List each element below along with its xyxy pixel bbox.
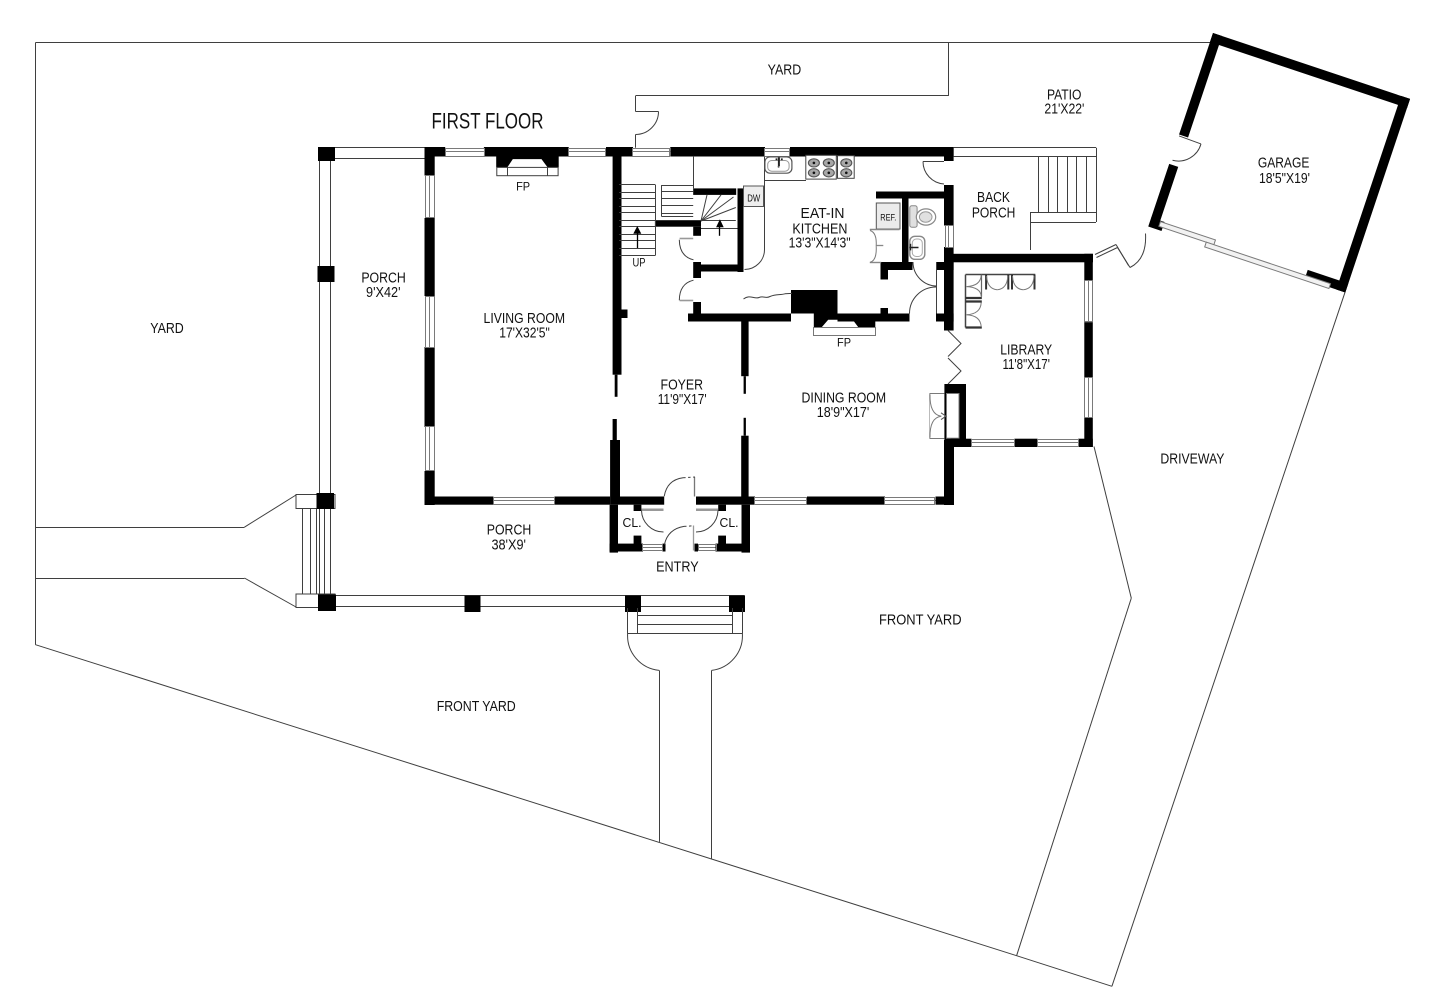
svg-text:CL.: CL. (623, 516, 642, 530)
svg-text:PORCH: PORCH (487, 523, 532, 539)
svg-text:YARD: YARD (150, 321, 184, 337)
svg-text:PORCH: PORCH (972, 206, 1016, 222)
svg-text:FIRST FLOOR: FIRST FLOOR (432, 109, 544, 134)
svg-text:FRONT YARD: FRONT YARD (437, 699, 516, 715)
svg-text:18'5"X19': 18'5"X19' (1259, 171, 1310, 187)
svg-text:DRIVEWAY: DRIVEWAY (1160, 452, 1224, 468)
svg-text:REF.: REF. (880, 213, 896, 224)
svg-text:21'X22': 21'X22' (1044, 101, 1084, 117)
svg-text:EAT-IN: EAT-IN (801, 206, 845, 222)
svg-text:38'X9': 38'X9' (491, 537, 526, 553)
svg-text:11'9"X17': 11'9"X17' (658, 392, 707, 408)
svg-text:YARD: YARD (768, 62, 802, 78)
svg-text:UP: UP (633, 257, 646, 269)
svg-text:CL.: CL. (720, 516, 739, 530)
svg-text:17'X32'5": 17'X32'5" (499, 325, 550, 341)
svg-text:FP: FP (837, 335, 851, 349)
svg-text:18'9"X17': 18'9"X17' (817, 405, 870, 421)
svg-text:GARAGE: GARAGE (1258, 155, 1310, 171)
svg-text:BACK: BACK (977, 190, 1010, 206)
svg-text:FP: FP (516, 179, 530, 193)
svg-text:ENTRY: ENTRY (656, 559, 699, 575)
svg-text:FRONT YARD: FRONT YARD (879, 613, 962, 629)
svg-text:DW: DW (747, 194, 760, 205)
svg-text:11'8"X17': 11'8"X17' (1002, 357, 1050, 373)
svg-text:13'3"X14'3": 13'3"X14'3" (789, 235, 851, 251)
svg-text:9'X42': 9'X42' (366, 285, 401, 301)
